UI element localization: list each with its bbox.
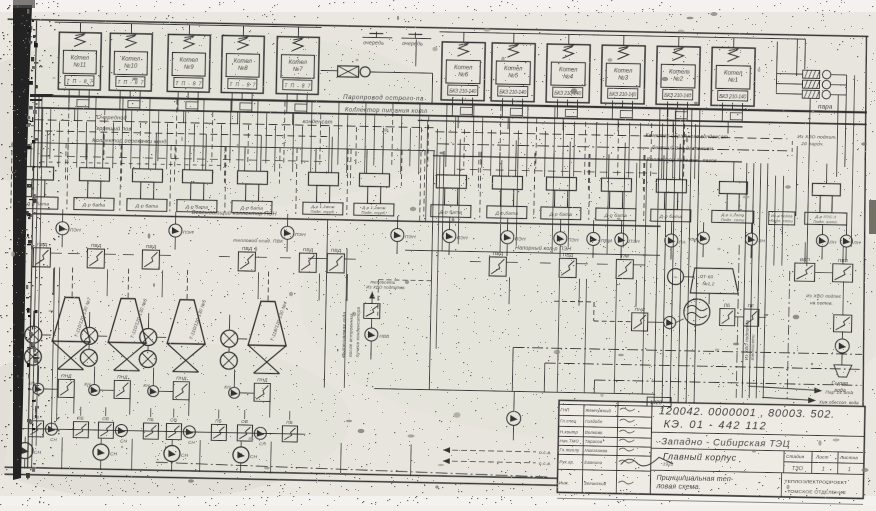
svg-text:СН: СН: [110, 451, 118, 457]
svg-text:СН: СН: [34, 450, 42, 456]
svg-text:Нач.ТМО: Нач.ТМО: [560, 438, 580, 443]
svg-text:пара: пара: [818, 103, 833, 110]
svg-text:ПВД: ПВД: [303, 247, 314, 253]
svg-text:ТЕПЛОЭЛЕКТРОПРОЕКТ: ТЕПЛОЭЛЕКТРОПРОЕКТ: [784, 479, 847, 486]
svg-text:Д-р бата: Д-р бата: [82, 202, 106, 208]
svg-text:Зелинский: Зелинский: [584, 481, 607, 486]
svg-text:Главный корпус: Главный корпус: [663, 451, 737, 462]
svg-text:ЛН: ЛН: [852, 240, 861, 246]
svg-text:ПМ: ПМ: [621, 254, 629, 260]
svg-text:ПЭН: ПЭН: [629, 239, 640, 245]
svg-text:Лист: Лист: [815, 454, 829, 459]
svg-text:ПЭН: ПЭН: [295, 232, 306, 238]
svg-text:ПВД: ПВД: [242, 246, 253, 252]
svg-text:ПВМ: ПВМ: [601, 238, 612, 244]
svg-text:ПБ: ПБ: [77, 416, 84, 421]
svg-text:Напорный кол-р ПЭН: Напорный кол-р ПЭН: [515, 244, 571, 252]
svg-text:ЛН: ЛН: [828, 240, 837, 246]
svg-text:теплосети: теплосети: [370, 279, 395, 285]
svg-text:КН: КН: [224, 385, 231, 390]
svg-text:ПВД: ПВД: [37, 242, 48, 248]
svg-text:СН: СН: [259, 441, 266, 446]
svg-text:ПНД: ПНД: [176, 376, 187, 381]
svg-text:ПБ: ПБ: [215, 418, 222, 423]
svg-text:ГНП: ГНП: [560, 407, 570, 412]
svg-text:после встроенных: после встроенных: [348, 313, 354, 357]
svg-text:Стадия: Стадия: [786, 454, 805, 459]
svg-text:ПЭН: ПЭН: [70, 227, 81, 233]
svg-text:КН: КН: [143, 383, 150, 388]
svg-text:КЭ. 01 - 442 112: КЭ. 01 - 442 112: [663, 418, 767, 432]
svg-text:ОВ: ОВ: [241, 419, 248, 424]
svg-text:~: ~: [673, 275, 677, 282]
svg-text:БКЗ 210-140: БКЗ 210-140: [664, 93, 691, 100]
svg-text:ПНД: ПНД: [117, 374, 128, 379]
svg-text:СН: СН: [181, 453, 189, 459]
svg-text:Д-р бата: Д-р бата: [494, 210, 518, 216]
svg-text:Хим.обессол. вода: Хим.обессол. вода: [818, 400, 859, 406]
svg-text:БКЗ 210-140: БКЗ 210-140: [449, 89, 476, 96]
svg-text:ТЗО: ТЗО: [792, 466, 804, 472]
svg-text:Еванина: Еванина: [584, 460, 602, 465]
svg-text:СН: СН: [50, 437, 57, 442]
svg-text:Сырая: Сырая: [831, 381, 848, 387]
svg-text:Николаева: Николаева: [585, 448, 608, 453]
svg-text:на сетев.: на сетев.: [810, 300, 833, 305]
svg-text:ПЭН: ПЭН: [183, 230, 194, 236]
svg-text:БКЗ 210-140: БКЗ 210-140: [609, 92, 636, 99]
svg-text:ПВД: ПВД: [563, 252, 574, 258]
svg-text:Из ХВО подпитка: Из ХВО подпитка: [366, 284, 405, 290]
svg-text:Подп. турб.: Подп. турб.: [361, 210, 386, 215]
svg-text:Д-р бата: Д-р бата: [26, 201, 50, 207]
svg-text:ПНД: ПНД: [61, 373, 72, 378]
svg-text:Н.контр: Н.контр: [560, 429, 579, 434]
svg-text:ПА: ПА: [679, 240, 686, 246]
svg-text:Подп. сети: Подп. сети: [770, 219, 793, 223]
svg-text:1928: 1928: [663, 461, 674, 466]
svg-text:Голдобе: Голдобе: [585, 419, 603, 424]
svg-text:конденсат: конденсат: [303, 119, 333, 126]
svg-text:Тарасов: Тарасов: [585, 439, 603, 444]
svg-text:Рук.гр.: Рук.гр.: [559, 459, 574, 464]
svg-text:очередь: очередь: [363, 40, 384, 46]
svg-text:Д-р бата: Д-р бата: [135, 203, 159, 209]
svg-text:о.с.в.: о.с.в.: [539, 451, 552, 456]
svg-text:Гл.теплу: Гл.теплу: [560, 447, 581, 452]
svg-text:1: 1: [822, 467, 825, 473]
svg-text:1: 1: [848, 467, 851, 473]
svg-text:Подп. сети: Подп. сети: [721, 217, 745, 222]
svg-text:БКЗ 210-140: БКЗ 210-140: [554, 91, 581, 98]
svg-text:ПБ: ПБ: [147, 417, 154, 422]
svg-text:Инж.: Инж.: [559, 480, 569, 485]
svg-text:теплосети: теплосети: [750, 334, 756, 360]
svg-text:горящий пов: горящий пов: [96, 125, 131, 133]
svg-text:ПЭН: ПЭН: [568, 237, 579, 243]
svg-text:Из ХВО подпит.: Из ХВО подпит.: [797, 134, 837, 141]
svg-text:ПВД: ПВД: [91, 243, 102, 249]
svg-text:Из-р бойла: Из-р бойла: [771, 214, 793, 218]
svg-text:ПНД: ПНД: [257, 377, 268, 382]
svg-text:ПВД: ПВД: [146, 244, 157, 250]
svg-text:ПТ-60: ПТ-60: [700, 274, 714, 279]
svg-text:СН: СН: [188, 440, 195, 445]
svg-text:ОВ: ОВ: [102, 416, 109, 421]
svg-text:Из ХВО подпитка: Из ХВО подпитка: [744, 320, 750, 361]
svg-text:Жемчужный: Жемчужный: [584, 408, 611, 414]
svg-text:Волково: Волково: [585, 430, 603, 435]
svg-text:БКЗ 210-140: БКЗ 210-140: [719, 94, 746, 101]
svg-text:Подп. турб.: Подп. турб.: [310, 209, 335, 214]
svg-text:НВВ: НВВ: [379, 334, 389, 339]
svg-text:Из ХВО подпес: Из ХВО подпес: [806, 293, 842, 299]
svg-text:ПБ: ПБ: [286, 420, 293, 425]
svg-text:ПВД: ПВД: [493, 251, 504, 257]
svg-text:ПЭН: ПЭН: [405, 234, 416, 240]
svg-text:Пар 14 ата: Пар 14 ата: [825, 390, 853, 397]
svg-text:Д-р бата: Д-р бата: [658, 214, 682, 220]
svg-text:Листов: Листов: [839, 455, 858, 460]
svg-text:ТОМСКОЕ ОТДЕЛЕНИЕ: ТОМСКОЕ ОТДЕЛЕНИЕ: [787, 489, 846, 496]
svg-text:ПВД: ПВД: [331, 248, 342, 254]
svg-text:о.с.в.: о.с.в.: [539, 462, 552, 467]
svg-text:СН: СН: [250, 454, 258, 460]
svg-text:Подп. котл.: Подп. котл.: [813, 219, 838, 224]
